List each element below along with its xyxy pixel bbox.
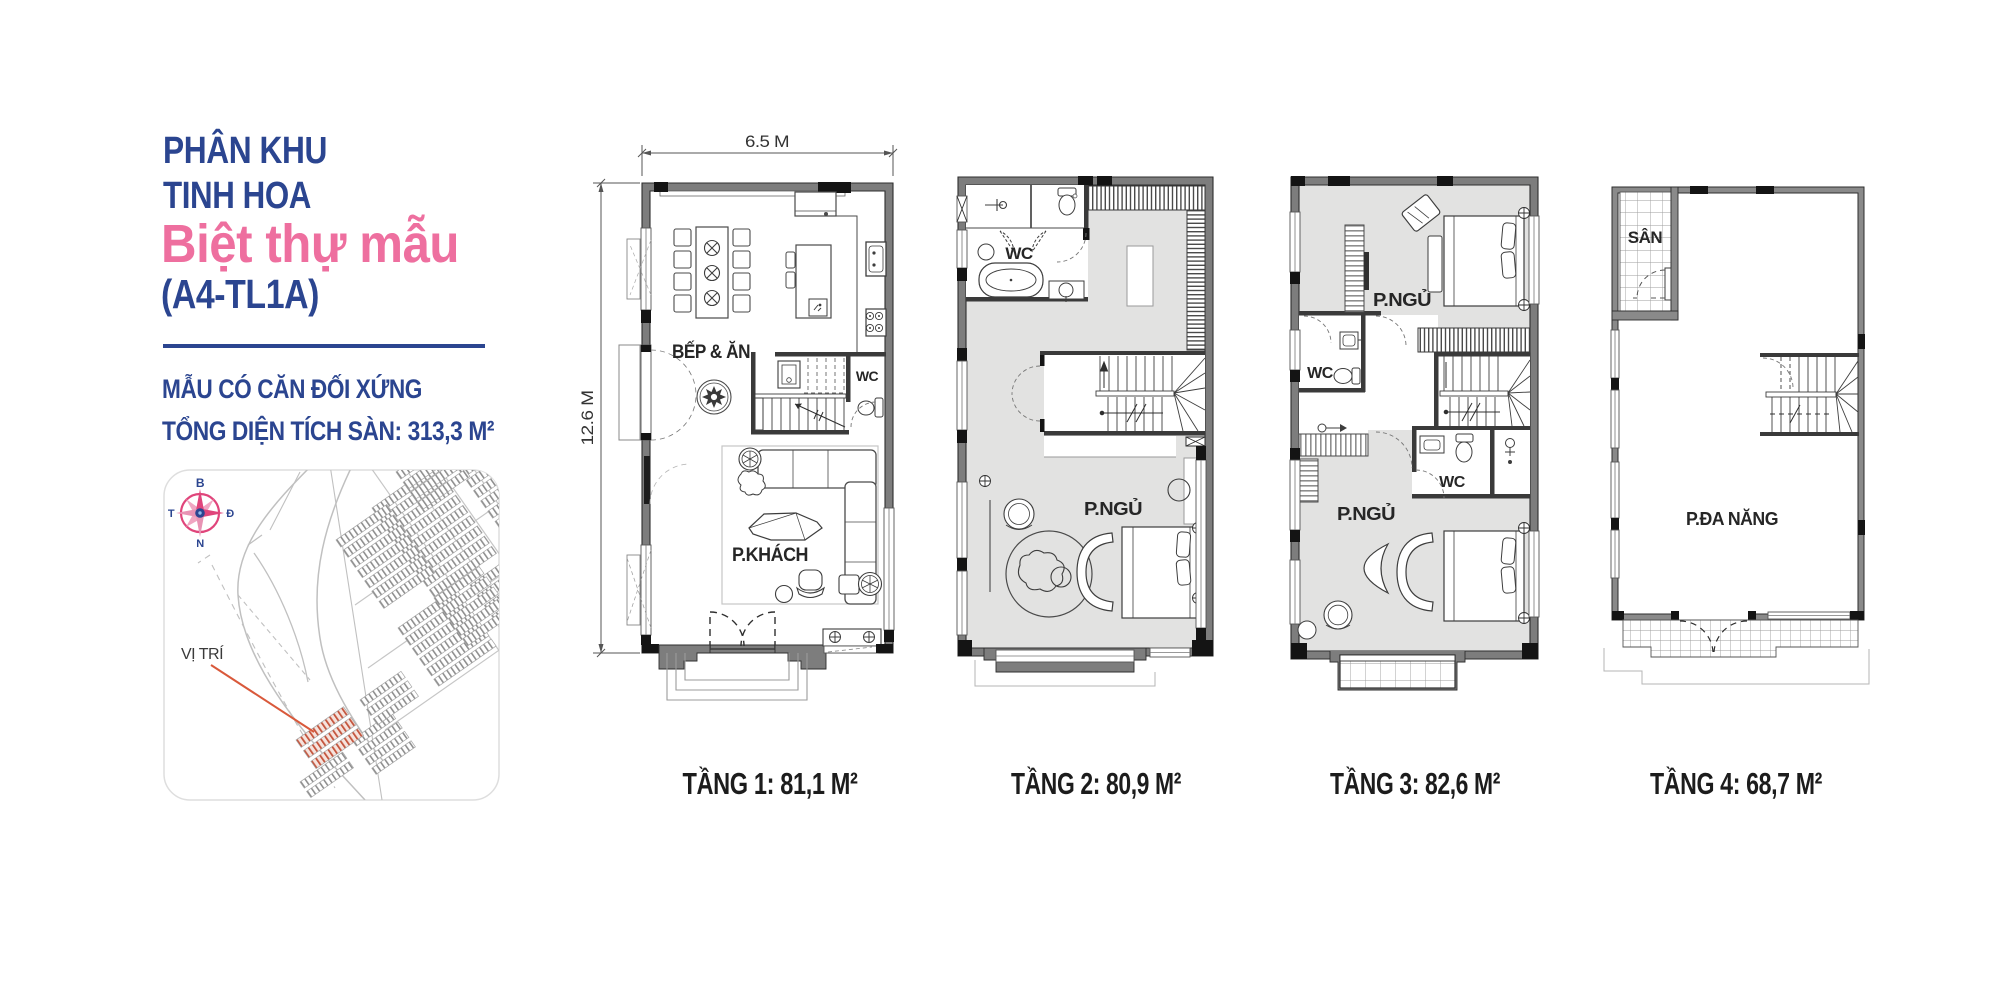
svg-text:TINH HOA: TINH HOA	[163, 175, 311, 217]
svg-text:N: N	[196, 538, 204, 550]
svg-text:TẦNG 3: 82,6 M²: TẦNG 3: 82,6 M²	[1330, 766, 1500, 801]
svg-text:WC: WC	[1439, 474, 1466, 491]
svg-text:WC: WC	[856, 368, 879, 384]
svg-text:BẾP & ĂN: BẾP & ĂN	[672, 341, 750, 363]
svg-text:TẦNG 1: 81,1 M²: TẦNG 1: 81,1 M²	[683, 766, 858, 801]
svg-text:TẦNG 2: 80,9 M²: TẦNG 2: 80,9 M²	[1011, 766, 1181, 801]
svg-text:Đ: Đ	[226, 508, 234, 520]
svg-text:6.5 M: 6.5 M	[745, 132, 789, 151]
svg-text:T: T	[168, 508, 175, 520]
svg-text:P.NGỦ: P.NGỦ	[1337, 503, 1395, 524]
svg-text:P.KHÁCH: P.KHÁCH	[732, 544, 808, 566]
svg-text:WC: WC	[1307, 365, 1334, 382]
svg-text:TỔNG DIỆN TÍCH SÀN: 313,3 M²: TỔNG DIỆN TÍCH SÀN: 313,3 M²	[162, 415, 494, 446]
svg-text:PHÂN KHU: PHÂN KHU	[163, 128, 327, 172]
svg-text:TẦNG 4: 68,7 M²: TẦNG 4: 68,7 M²	[1650, 766, 1822, 801]
svg-text:P.NGỦ: P.NGỦ	[1084, 498, 1142, 519]
svg-text:Biệt thự mẫu: Biệt thự mẫu	[161, 214, 459, 274]
svg-text:B: B	[196, 476, 205, 490]
svg-text:WC: WC	[1005, 244, 1033, 263]
svg-text:P.ĐA NĂNG: P.ĐA NĂNG	[1686, 508, 1778, 529]
svg-text:(A4-TL1A): (A4-TL1A)	[161, 271, 319, 317]
svg-text:P.NGỦ: P.NGỦ	[1373, 289, 1431, 310]
svg-text:MẪU CÓ CĂN ĐỐI XỨNG: MẪU CÓ CĂN ĐỐI XỨNG	[162, 372, 422, 404]
svg-text:12.6 M: 12.6 M	[578, 391, 597, 446]
svg-text:VỊ TRÍ: VỊ TRÍ	[181, 644, 224, 663]
svg-text:SÂN: SÂN	[1628, 228, 1663, 247]
